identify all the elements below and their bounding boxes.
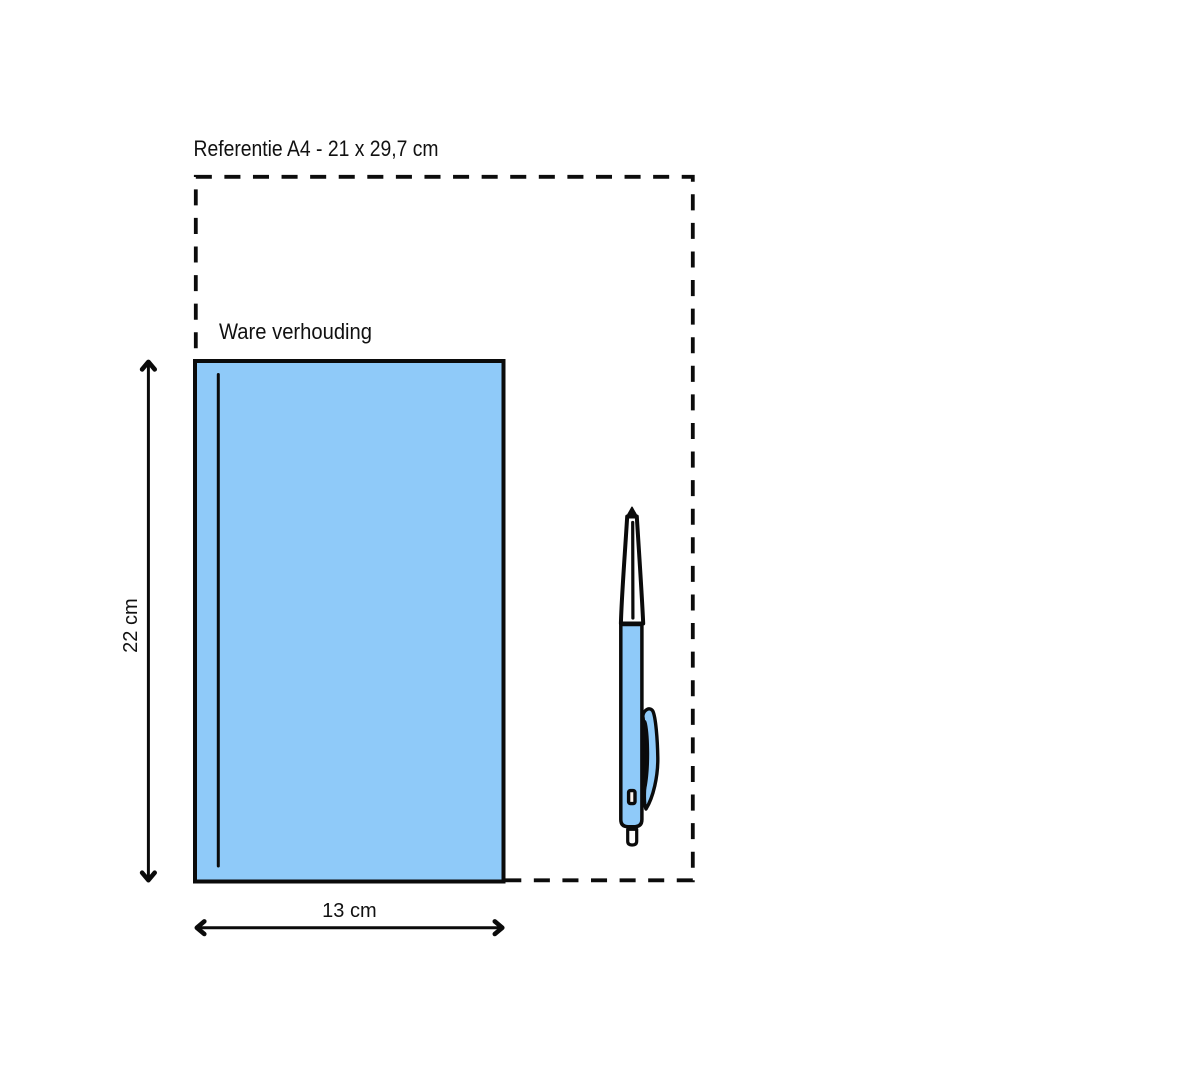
svg-text:Referentie A4 - 21 x 29,7 cm: Referentie A4 - 21 x 29,7 cm [194, 136, 439, 161]
svg-text:22 cm: 22 cm [120, 598, 142, 652]
svg-text:13 cm: 13 cm [322, 900, 376, 922]
svg-text:Ware verhouding: Ware verhouding [219, 319, 372, 344]
